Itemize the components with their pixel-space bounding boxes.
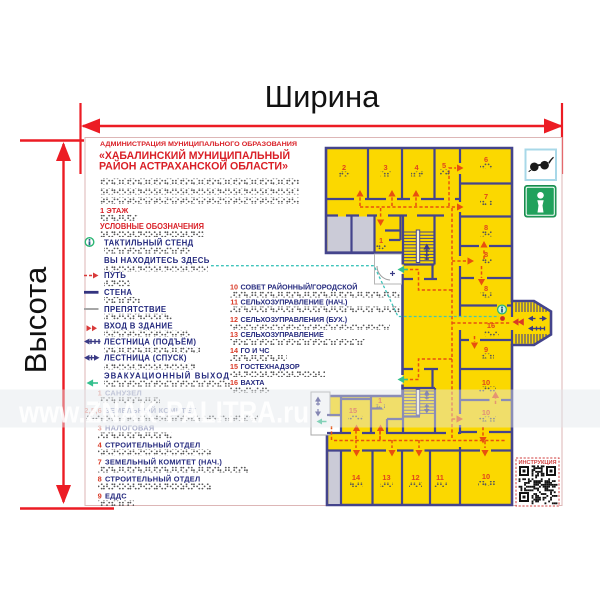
svg-text:ЭВАКУАЦИОННЫЙ ВЫХОД: ЭВАКУАЦИОННЫЙ ВЫХОД bbox=[104, 371, 230, 380]
svg-text:12: 12 bbox=[230, 315, 238, 324]
svg-text:ТАКТИЛЬНЫЙ СТЕНД: ТАКТИЛЬНЫЙ СТЕНД bbox=[104, 238, 194, 247]
svg-text:16: 16 bbox=[230, 378, 238, 387]
svg-text:8: 8 bbox=[484, 223, 488, 232]
svg-text:8: 8 bbox=[484, 284, 488, 293]
svg-text:9: 9 bbox=[98, 492, 102, 501]
svg-text:УСЛОВНЫЕ ОБОЗНАЧЕНИЯ: УСЛОВНЫЕ ОБОЗНАЧЕНИЯ bbox=[100, 222, 204, 231]
svg-text:СОВЕТ РАЙОННЫЙ/ГОРОДСКОЙ: СОВЕТ РАЙОННЫЙ/ГОРОДСКОЙ bbox=[241, 283, 358, 292]
svg-text:ЕДДС: ЕДДС bbox=[105, 492, 127, 501]
svg-text:10: 10 bbox=[482, 378, 490, 387]
svg-text:8: 8 bbox=[484, 250, 488, 259]
svg-text:13: 13 bbox=[382, 473, 390, 482]
svg-text:ВХОД В ЗДАНИЕ: ВХОД В ЗДАНИЕ bbox=[104, 322, 173, 331]
svg-text:9: 9 bbox=[484, 345, 488, 354]
svg-text:www.ZNAK-PALITRA.ru: www.ZNAK-PALITRA.ru bbox=[18, 395, 309, 430]
svg-text:2: 2 bbox=[342, 163, 346, 172]
svg-text:14: 14 bbox=[352, 473, 361, 482]
svg-text:7: 7 bbox=[98, 458, 102, 467]
svg-text:СТРОИТЕЛЬНЫЙ ОТДЕЛ: СТРОИТЕЛЬНЫЙ ОТДЕЛ bbox=[105, 475, 200, 484]
svg-text:1 ЭТАЖ: 1 ЭТАЖ bbox=[100, 206, 128, 215]
svg-text:5: 5 bbox=[442, 161, 446, 170]
svg-text:11: 11 bbox=[230, 298, 238, 307]
svg-text:Высота: Высота bbox=[18, 266, 53, 373]
svg-text:СТРОИТЕЛЬНЫЙ ОТДЕЛ: СТРОИТЕЛЬНЫЙ ОТДЕЛ bbox=[105, 441, 200, 450]
svg-text:СЕЛЬХОЗУПРАВЛЕНИЕ (НАЧ.): СЕЛЬХОЗУПРАВЛЕНИЕ (НАЧ.) bbox=[241, 298, 349, 307]
svg-text:ПРЕПЯТСТВИЕ: ПРЕПЯТСТВИЕ bbox=[104, 305, 166, 314]
svg-text:ИНСТРУКЦИЯ: ИНСТРУКЦИЯ bbox=[519, 460, 557, 466]
svg-text:СТЕНА: СТЕНА bbox=[104, 288, 132, 297]
svg-text:ПУТЬ: ПУТЬ bbox=[104, 271, 126, 280]
svg-text:СЕЛЬХОЗУПРАВЛЕНИЕ: СЕЛЬХОЗУПРАВЛЕНИЕ bbox=[241, 330, 324, 339]
svg-text:4: 4 bbox=[98, 441, 103, 450]
svg-text:10: 10 bbox=[482, 472, 490, 481]
svg-text:14: 14 bbox=[230, 346, 238, 355]
svg-text:Ширина: Ширина bbox=[265, 79, 380, 114]
svg-text:1: 1 bbox=[379, 236, 383, 245]
svg-text:ЗЕМЕЛЬНЫЙ КОМИТЕТ (НАЧ.): ЗЕМЕЛЬНЫЙ КОМИТЕТ (НАЧ.) bbox=[105, 458, 222, 467]
svg-text:6: 6 bbox=[484, 155, 488, 164]
svg-text:3: 3 bbox=[383, 163, 387, 172]
svg-text:13: 13 bbox=[230, 330, 238, 339]
svg-text:ВАХТА: ВАХТА bbox=[241, 378, 265, 387]
svg-text:8: 8 bbox=[98, 475, 102, 484]
svg-text:РАЙОН АСТРАХАНСКОЙ ОБЛАСТИ»: РАЙОН АСТРАХАНСКОЙ ОБЛАСТИ» bbox=[99, 159, 288, 172]
svg-text:СЕЛЬХОЗУПРАВЛЕНИЯ (БУХ.): СЕЛЬХОЗУПРАВЛЕНИЯ (БУХ.) bbox=[241, 315, 348, 324]
svg-text:ЛЕСТНИЦА (ПОДЪЁМ): ЛЕСТНИЦА (ПОДЪЁМ) bbox=[104, 337, 196, 346]
svg-text:10: 10 bbox=[230, 283, 238, 292]
svg-text:7: 7 bbox=[484, 192, 488, 201]
svg-text:ГОСТЕХНАДЗОР: ГОСТЕХНАДЗОР bbox=[241, 362, 300, 371]
svg-text:ЛЕСТНИЦА (СПУСК): ЛЕСТНИЦА (СПУСК) bbox=[104, 354, 187, 363]
svg-text:ГО И ЧС: ГО И ЧС bbox=[241, 346, 270, 355]
svg-text:12: 12 bbox=[411, 473, 419, 482]
svg-text:АДМИНИСТРАЦИЯ МУНИЦИПАЛЬНОГО О: АДМИНИСТРАЦИЯ МУНИЦИПАЛЬНОГО ОБРАЗОВАНИЯ bbox=[100, 141, 298, 148]
svg-text:ВЫ НАХОДИТЕСЬ ЗДЕСЬ: ВЫ НАХОДИТЕСЬ ЗДЕСЬ bbox=[104, 256, 210, 265]
svg-text:15: 15 bbox=[230, 362, 238, 371]
svg-text:11: 11 bbox=[436, 473, 444, 482]
svg-text:16: 16 bbox=[487, 321, 495, 330]
